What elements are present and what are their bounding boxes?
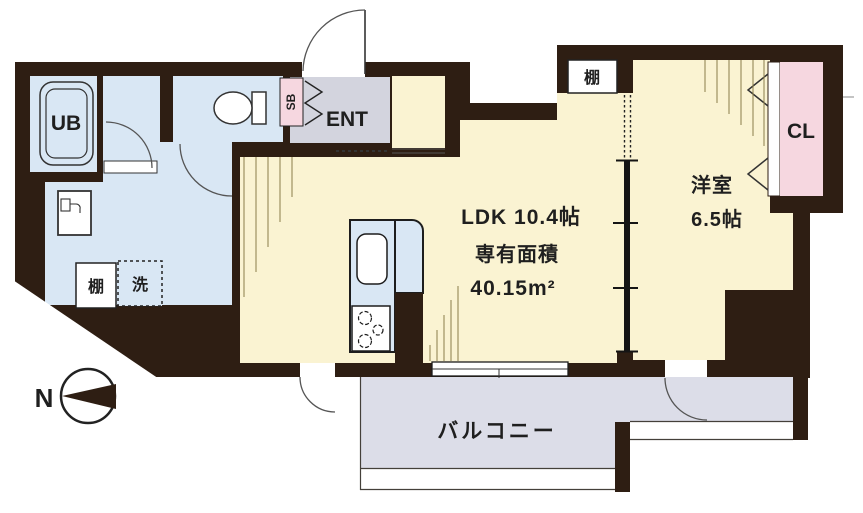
balcony-floor-conn <box>615 377 630 422</box>
entrance-label: ENT <box>326 108 368 131</box>
washer-label: 洗 <box>132 275 148 294</box>
area-value: 40.15m² <box>470 277 555 300</box>
toilet-tank <box>252 92 266 124</box>
ldk-south-door-gap <box>300 363 335 377</box>
floor-plan: UB ENT SB 棚 棚 洗 LDK 10.4帖 専有面積 40.15m² 洋… <box>0 0 863 513</box>
closet-door-track <box>768 62 780 196</box>
shelf-top-label: 棚 <box>584 68 600 87</box>
kitchen <box>350 220 423 363</box>
entrance-door-gap <box>302 58 365 77</box>
balcony-pillar-mid <box>615 422 630 492</box>
shoe-box-label: SB <box>284 93 298 110</box>
kitchen-wall-stub <box>395 293 423 363</box>
ldk-floor-upper <box>460 120 557 157</box>
balcony-floor-right <box>630 377 793 422</box>
area-label: 専有面積 <box>475 242 559 266</box>
ldk-floor-alcove <box>392 76 445 148</box>
compass <box>61 369 116 423</box>
ldk-floor-main <box>240 157 622 363</box>
bedroom-label: 洋室 <box>691 173 733 197</box>
bedroom-floor-lower <box>633 290 725 360</box>
wall-under-bath <box>30 172 103 182</box>
toilet-bowl <box>214 92 252 124</box>
closet-label: CL <box>787 120 815 143</box>
balcony-pillar-right <box>793 377 808 440</box>
toilet-floor-lower <box>160 142 232 172</box>
balcony-window <box>432 362 568 378</box>
compass-north-label: N <box>35 383 54 413</box>
kitchen-counter-right <box>395 220 423 293</box>
divider-sliding-door <box>624 160 630 352</box>
shelf-wash-label: 棚 <box>88 277 104 296</box>
vestibule-door-panel <box>104 161 157 173</box>
wall-stub-divider-bottom <box>617 352 633 378</box>
ldk-label: LDK 10.4帖 <box>461 206 581 229</box>
balcony-label: バルコニー <box>437 420 557 443</box>
bath-label: UB <box>51 112 81 135</box>
wall-stub-hall <box>232 142 240 205</box>
bedroom-balcony-door-gap <box>665 360 707 378</box>
ldk-floor-shelfcol2 <box>557 93 568 157</box>
bedroom-size-label: 6.5帖 <box>691 208 743 231</box>
kitchen-sink <box>357 234 387 284</box>
washbasin <box>58 191 91 235</box>
wall-stub-alcove <box>445 120 460 153</box>
